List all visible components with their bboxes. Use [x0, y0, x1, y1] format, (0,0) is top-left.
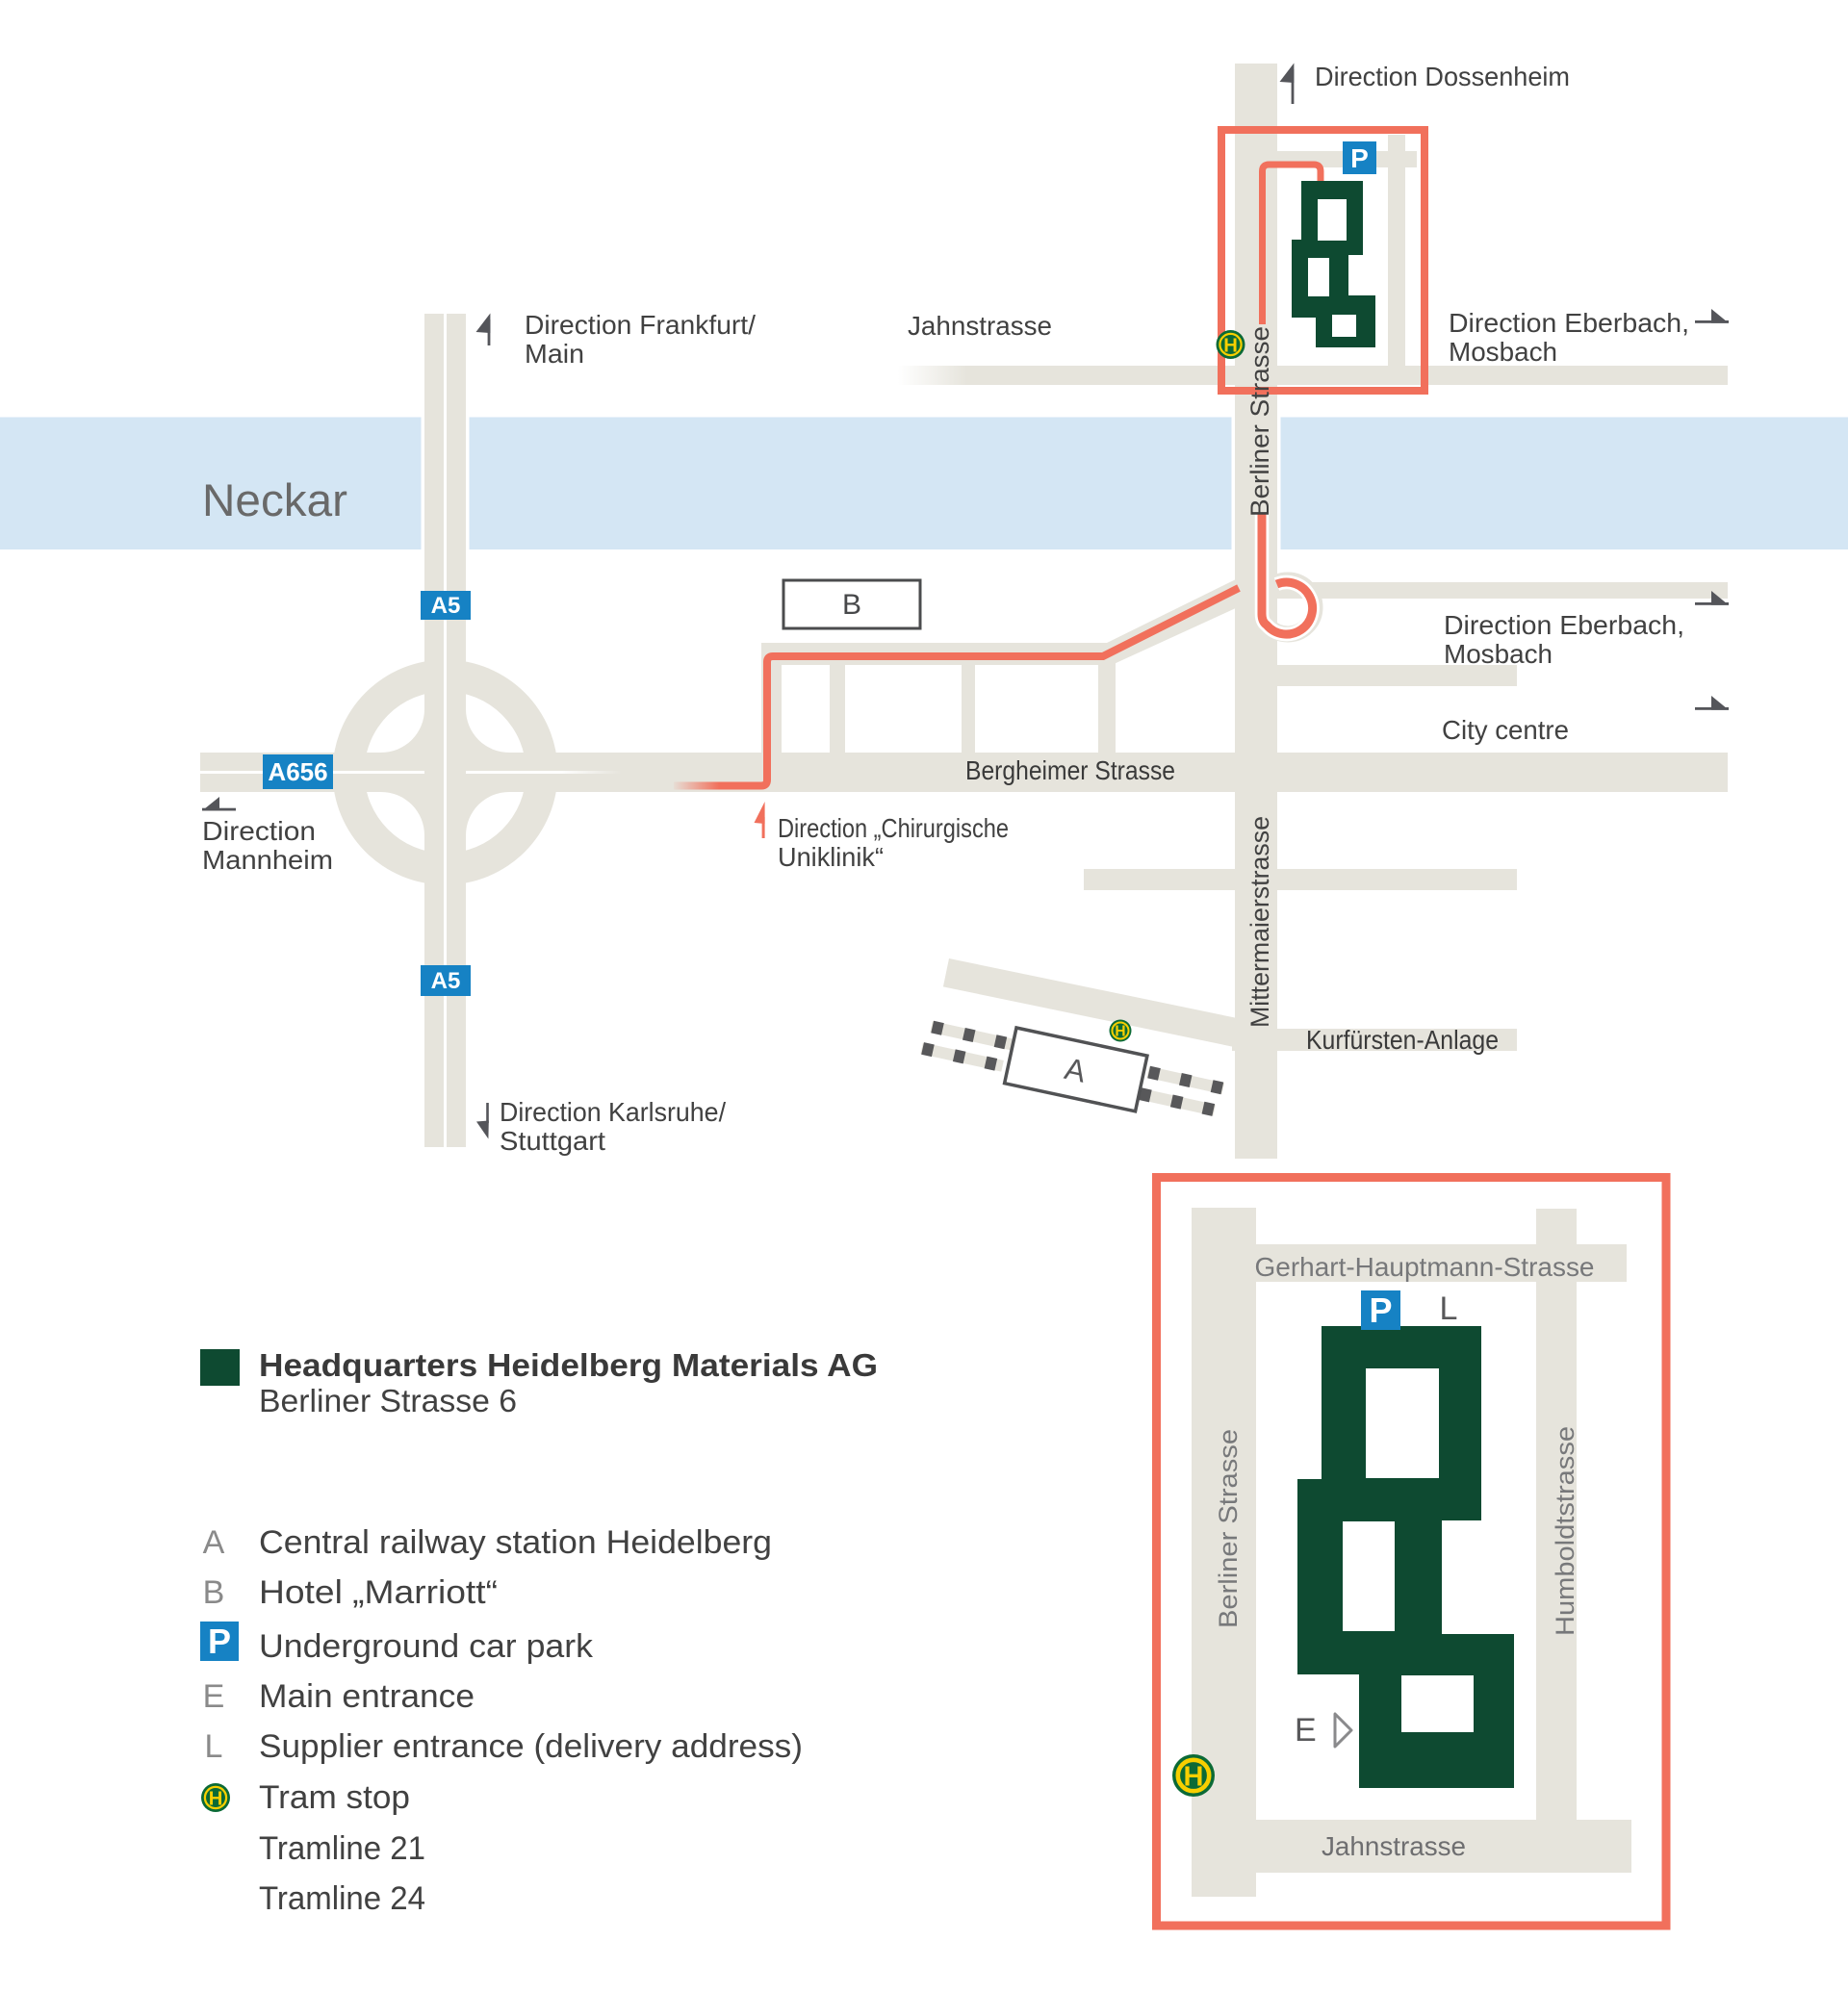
svg-text:Gerhart-Hauptmann-Strasse: Gerhart-Hauptmann-Strasse [1255, 1252, 1595, 1282]
svg-text:B: B [203, 1574, 225, 1611]
svg-text:Direction Karlsruhe/: Direction Karlsruhe/ [500, 1097, 726, 1127]
svg-text:A5: A5 [431, 593, 461, 619]
svg-text:Supplier entrance (delivery ad: Supplier entrance (delivery address) [259, 1728, 803, 1765]
svg-text:City centre: City centre [1442, 715, 1569, 745]
svg-text:Direction Eberbach,: Direction Eberbach, [1449, 308, 1689, 338]
svg-text:Direction: Direction [202, 816, 316, 846]
svg-text:A656: A656 [268, 757, 327, 786]
svg-text:Jahnstrasse: Jahnstrasse [1322, 1831, 1466, 1861]
svg-text:A5: A5 [431, 968, 461, 994]
svg-text:Direction Frankfurt/: Direction Frankfurt/ [525, 310, 756, 340]
svg-text:Uniklinik“: Uniklinik“ [778, 842, 884, 872]
svg-text:L: L [1440, 1290, 1458, 1327]
svg-text:Tramline 21: Tramline 21 [259, 1830, 425, 1867]
svg-text:H: H [1184, 1762, 1204, 1793]
svg-text:Tram stop: Tram stop [259, 1779, 410, 1816]
svg-text:E: E [203, 1678, 225, 1715]
svg-text:Headquarters Heidelberg Materi: Headquarters Heidelberg Materials AG [259, 1347, 878, 1383]
svg-text:P: P [1369, 1290, 1392, 1330]
svg-text:H: H [1115, 1024, 1125, 1040]
svg-text:Berliner Strasse: Berliner Strasse [1245, 326, 1274, 517]
svg-text:Mittermaierstrasse: Mittermaierstrasse [1245, 816, 1274, 1028]
svg-text:Berliner Strasse 6: Berliner Strasse 6 [259, 1383, 517, 1418]
svg-text:Mosbach: Mosbach [1444, 639, 1553, 669]
svg-text:Neckar: Neckar [202, 474, 347, 525]
svg-text:Central railway station Heidel: Central railway station Heidelberg [259, 1524, 772, 1561]
svg-text:H: H [209, 1788, 223, 1809]
svg-text:Bergheimer Strasse: Bergheimer Strasse [965, 755, 1175, 785]
svg-text:Mannheim: Mannheim [202, 845, 333, 875]
svg-text:Main: Main [525, 339, 584, 369]
svg-text:Berliner Strasse: Berliner Strasse [1214, 1429, 1243, 1628]
svg-text:Jahnstrasse: Jahnstrasse [908, 311, 1052, 341]
svg-text:Mosbach: Mosbach [1449, 337, 1557, 367]
svg-text:Hotel „Marriott“: Hotel „Marriott“ [259, 1574, 498, 1611]
svg-text:A: A [203, 1524, 225, 1561]
svg-text:Main entrance: Main entrance [259, 1678, 475, 1715]
svg-text:Humboldtstrasse: Humboldtstrasse [1551, 1426, 1579, 1636]
svg-text:P: P [208, 1622, 231, 1661]
svg-text:H: H [1223, 335, 1238, 356]
svg-text:Direction Eberbach,: Direction Eberbach, [1444, 610, 1684, 640]
svg-text:L: L [205, 1728, 223, 1765]
svg-text:Kurfürsten-Anlage: Kurfürsten-Anlage [1306, 1025, 1499, 1055]
svg-text:Direction „Chirurgische: Direction „Chirurgische [778, 813, 1009, 843]
svg-text:Tramline 24: Tramline 24 [259, 1880, 425, 1917]
svg-text:Underground car park: Underground car park [259, 1628, 594, 1665]
svg-text:B: B [842, 589, 861, 621]
svg-text:Stuttgart: Stuttgart [500, 1126, 605, 1156]
svg-text:E: E [1295, 1712, 1317, 1749]
svg-text:Direction Dossenheim: Direction Dossenheim [1315, 62, 1570, 91]
svg-text:P: P [1350, 143, 1369, 173]
